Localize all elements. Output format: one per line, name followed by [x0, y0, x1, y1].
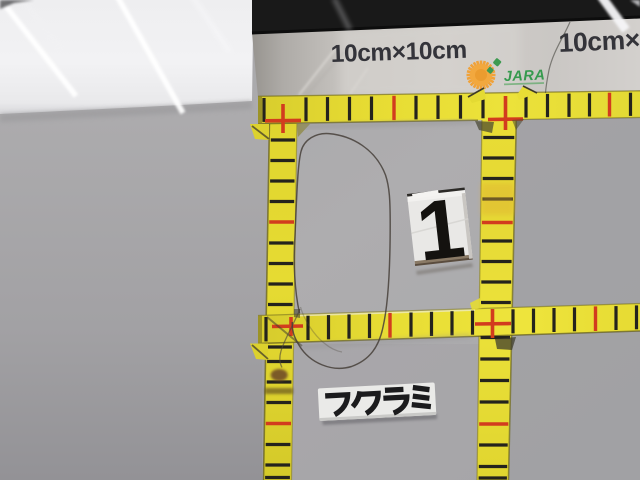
- svg-text:10cm×: 10cm×: [558, 24, 640, 58]
- svg-text:10cm×10cm: 10cm×10cm: [330, 37, 467, 68]
